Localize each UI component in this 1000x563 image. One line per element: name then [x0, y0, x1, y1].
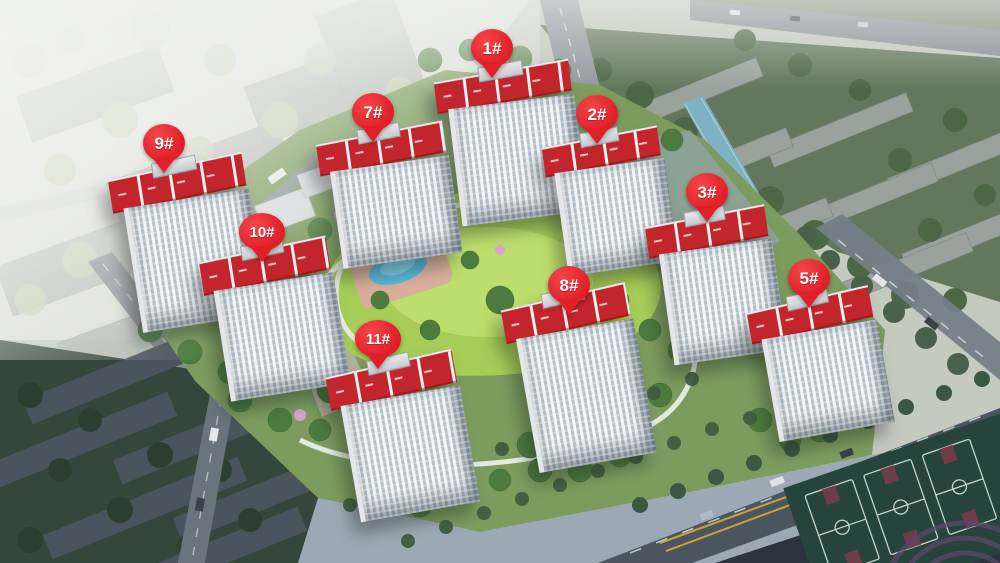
building-marker-tail	[366, 353, 390, 369]
marker-3[interactable]: 3#	[686, 173, 728, 211]
building-11-facade	[341, 385, 481, 522]
building-marker-tail	[797, 292, 821, 308]
building-marker-tail	[557, 299, 581, 315]
marker-5[interactable]: 5#	[788, 259, 830, 297]
building-marker-tail	[361, 126, 385, 142]
building-7	[316, 124, 461, 271]
marker-8[interactable]: 8#	[548, 266, 590, 304]
building-marker-tail	[585, 128, 609, 144]
marker-1[interactable]: 1#	[471, 29, 513, 67]
building-8-facade	[516, 318, 657, 473]
building-marker-tail	[480, 62, 504, 78]
building-marker-tail	[695, 206, 719, 222]
marker-9[interactable]: 9#	[143, 124, 185, 162]
aerial-site-plan: 1# 7# 2# 9# 3# 10# 5# 8# 11#	[0, 0, 1000, 563]
building-5-facade	[761, 319, 894, 442]
marker-2[interactable]: 2#	[576, 95, 618, 133]
building-5	[746, 288, 892, 443]
building-marker-tail	[250, 246, 274, 262]
building-11	[325, 352, 478, 524]
marker-10[interactable]: 10#	[239, 213, 285, 251]
building-7-facade	[330, 155, 463, 269]
marker-7[interactable]: 7#	[352, 93, 394, 131]
marker-11[interactable]: 11#	[355, 320, 401, 358]
building-marker-tail	[152, 157, 176, 173]
